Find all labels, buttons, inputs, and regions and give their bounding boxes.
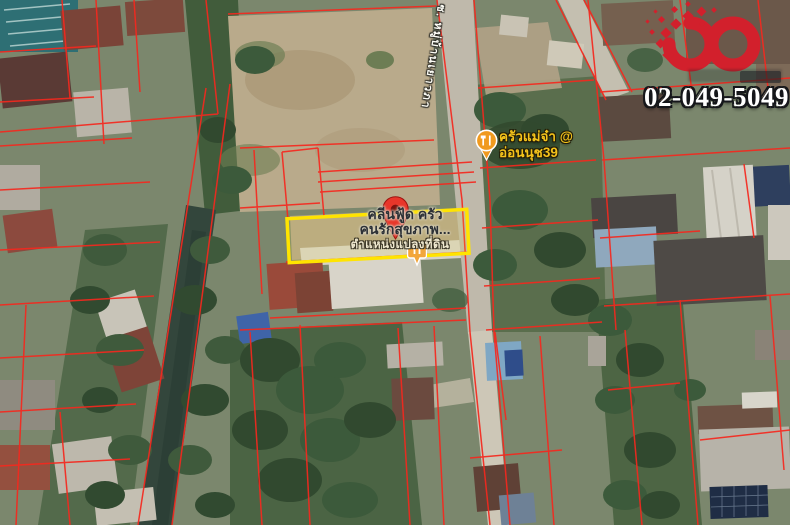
restaurant-marker-icon[interactable] (474, 129, 499, 167)
plot-business-label[interactable]: คลีนฟู้ด ครัว คนรักสุขภาพ... (350, 207, 460, 237)
plot-label-line2: คนรักสุขภาพ... (350, 222, 460, 237)
restaurant-label[interactable]: ครัวแม่จ๋า @ อ่อนนุช39 (499, 129, 573, 161)
infinity-logo-icon (645, 1, 754, 65)
plot-position-caption: ตำแหน่งแปลงที่ดิน (330, 236, 470, 254)
restaurant-label-line2: อ่อนนุช39 (499, 145, 573, 161)
restaurant-label-line1: ครัวแม่จ๋า @ (499, 129, 573, 145)
plot-label-line1: คลีนฟู้ด ครัว (350, 207, 460, 222)
phone-number: 02-049-5049 (644, 82, 788, 113)
satellite-listing-image: ซ. หมู่บ้านเยาวภา ครัวแม่จ๋า @ อ่อนนุช39… (0, 0, 790, 525)
